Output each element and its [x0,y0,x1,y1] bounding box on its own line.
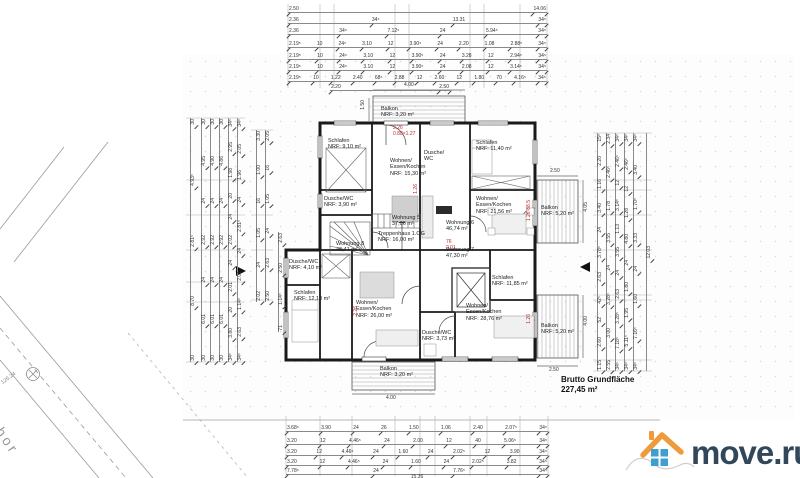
dim-value: 24 [383,439,391,444]
dim-value: 3.90⁵ [411,65,425,70]
dim-value: 13.31 [452,18,467,23]
dim-value: 24⁵ [338,54,348,59]
mini-dim-right-balcony-side: 4.05 [584,202,589,212]
dimension-chain: 34⁵2.46⁵123.14⁵1.133.55242.633.28⁵7.18⁵3… [615,133,624,371]
annotation-door-size-3: 2.26 [354,306,360,316]
dim-value: 2.46⁵ [625,157,630,171]
dim-value: 2.95 [229,141,234,153]
dim-value: 30 [191,118,196,126]
dimension-chain: 3.68⁵3.9024261.501.062.402.07⁵34⁵ [286,424,548,432]
dim-value: 1.28 [625,207,630,219]
gross-floor-area-label: Brutto Grundfläche 227,45 m² [561,375,634,395]
dim-value: 24 [439,29,447,34]
dim-value: 2.08 [461,65,473,70]
dim-value: 1.05 [257,227,262,239]
dimension-chain: 2.19⁵1024⁵3.10123.90⁵242.201.082.88⁵34⁵ [288,40,547,48]
dimension-chain: 2.19⁵101.222.4068⁵2.88122.60121.80704.16… [288,74,547,82]
dim-value: 2.81⁵ [191,234,196,248]
dimension-chain: 2.05161.05242.632.50 [265,130,274,302]
dim-value: 3.68⁵ [286,426,300,431]
dim-value: 7.16⁵ [634,326,639,340]
dim-value: 2.50 [266,290,271,302]
room-label-wohnen-1: Wohnen/ Essen/Kochen NRF: 15,30 m² [390,158,426,177]
room-label-wohnung-5: Wohnung 5 37,06 m² [392,215,420,228]
dim-value: 4.16⁵ [513,76,527,81]
dim-value: 10 [316,65,324,70]
dim-value: 3.78⁵ [598,245,603,259]
dim-value: 6.01 [211,313,216,325]
dim-value: 24 [257,261,262,269]
dim-value: 1.22 [330,76,342,81]
dim-value: 3.55 [616,246,621,258]
dim-value: 2.07⁵ [504,426,518,431]
dim-value: 3.82 [506,460,518,465]
room-label-wohnen-4: Wohnen/ Essen/Kochen NRF: 28,76 m² [466,303,502,322]
dim-value: 24 [202,276,207,284]
dimension-chain: 2.19⁵1024⁵3.10123.90⁵242.08123.14⁵34⁵ [288,63,547,71]
dim-value: 24 [211,197,216,205]
dim-value: 12 [416,76,424,81]
dim-value: 3.90 [509,450,521,455]
dim-value: 2.36 [288,18,300,23]
annotation-door-size-1: 1.26·88.5 [527,200,533,221]
dimension-chain: 3.20124.46⁵241.60242.02⁵3.8234⁵ [286,458,548,466]
dim-value: 1.70⁵ [634,197,639,211]
dim-value: 16 [257,197,262,205]
dim-value: 2.02 [229,234,234,246]
dim-value: 2.92 [211,234,216,246]
dim-value: 24 [352,426,360,431]
room-label-wohnen-2: Wohnen/ Essen/Kochen NRF: 21,56 m² [476,196,512,215]
dim-value: 30 [191,354,196,362]
annotation-window-size: 2.26 0.88×1.27 [393,126,415,137]
dim-value: 1.50 [408,426,420,431]
dim-value: 4.46⁵ [341,450,355,455]
room-label-dusche-4: Dusche/WC NRF: 3,73 m² [422,330,455,343]
room-label-wohnung-6: Wohnung 6 46,74 m² [446,220,474,233]
dim-value: 24⁵ [337,42,347,47]
dim-value: 12 [625,185,630,193]
room-label-dusche-1: Dusche/ WC [424,150,444,163]
room-label-schlafen-1: Schlafen NRF: 9,10 m² [328,138,361,151]
mini-dim-bottom-balcony: 4.00 [386,396,396,401]
dim-value: 1.08 [484,42,496,47]
dim-value: 2.46⁵ [607,165,612,179]
dim-value: 1.14⁵ [279,292,284,306]
dim-value: 3.80 [229,327,234,339]
dim-value: 34⁵ [537,76,547,81]
dim-value: 34⁵ [634,361,639,371]
dim-value: 2.19⁵ [288,42,302,47]
dim-value: 6.01 [220,313,225,325]
dimension-chain: 304.93⁵2.81⁵8.7030 [190,118,199,362]
room-label-dusche-3: Dusche/WC NRF: 4,10 m² [289,259,322,272]
dim-value: 8.70 [191,295,196,307]
dim-value: 24 [229,259,234,267]
dim-value: 30 [202,118,207,126]
dim-value: 34⁵ [537,54,547,59]
dim-value: 5.11⁵ [625,334,630,347]
dim-value: 1.16 [598,178,603,190]
dim-value: 34⁵ [537,29,547,34]
room-label-schlafen-2: Schlafen NRF: 11,40 m² [476,140,512,153]
dim-value: 1.80 [473,76,485,81]
dim-value: 68⁵ [374,76,384,81]
dim-value: 34⁵ [625,133,630,143]
dim-value: 2.01 [229,281,234,293]
dim-value: 3.55 [607,232,612,244]
dimension-chain: 34⁵3.401.70⁵3.33241.607.16⁵34⁵ [633,133,642,371]
dim-value: 1.13 [616,223,621,235]
room-label-treppenhaus: Treppenhaus 1.OG NRF: 16,00 m² [378,231,425,244]
dim-value: 24 [598,226,603,234]
dim-value: 30 [211,354,216,362]
dim-value: 5.06⁵ [503,439,517,444]
dim-value: 1.60 [397,450,409,455]
dim-value: 2.94⁵ [509,54,523,59]
room-label-schlafen-3: Schlafen NRF: 12,10 m² [294,290,330,303]
mini-dim-top-balcony-side: 1.50 [361,100,366,110]
dim-value: 2.60 [434,76,446,81]
dim-value: 2.50 [288,7,300,12]
dim-value: 10 [316,42,324,47]
floorplan-page: 2.5014.062.3634⁵13.3134⁵2.3634⁵7.12⁵245.… [0,0,800,478]
dim-value: 34⁵ [238,118,243,128]
dim-value: 4.95 [202,155,207,167]
dim-value: 24 [382,460,390,465]
dim-value: 1.60 [410,460,422,465]
dim-value: 3.14⁵ [509,65,523,70]
dim-value: 24 [616,269,621,277]
dim-value: 2.50 [279,262,284,274]
dim-value: 2.92 [220,234,225,246]
dim-value: 1.14⁵ [238,297,243,311]
dimension-chain: 2.5014.06 [288,5,547,13]
dim-value: 7.18⁵ [616,336,621,350]
dim-value: 24 [439,54,447,59]
dim-value: 1.78 [607,200,612,212]
dim-value: 26 [380,426,388,431]
dim-value: 34⁵ [616,361,621,371]
dimension-chain: 3.301.00161.05242.02 [256,130,265,302]
dim-value: 70 [495,76,503,81]
dim-value: 34⁵ [537,42,547,47]
dim-value: 10 [312,76,320,81]
dim-value: 24 [443,460,451,465]
dimension-chain: 15⁵2.201.163.40243.78⁵2.6342⁵522.601.15 [597,133,606,371]
dimension-chain: 34⁵2.951.9820242.02242.01203.8034⁵ [228,118,237,362]
dim-value: 12 [389,65,397,70]
dimension-chain: 304.95242.92246.0130 [201,118,210,362]
dim-value: 24 [266,227,271,235]
dim-value: 2.60 [598,336,603,348]
dim-value: 2.01 [238,270,243,282]
mini-dim-right-balcony2-bottom: 2.50 [549,368,559,373]
dim-value: 40 [474,439,482,444]
house-icon [640,428,686,477]
dimension-chain: 3.20124.46⁵242.0012405.06⁵34⁵ [286,437,548,445]
dim-value: 2.05 [238,143,243,155]
dim-value: 2.40 [352,76,364,81]
dim-value: 34⁵ [238,352,243,362]
dim-value: 4.93⁵ [191,173,196,187]
dim-value: 24 [436,42,444,47]
dim-value: 3.28 [461,54,473,59]
dim-value: 3.10 [361,42,373,47]
dimension-chain: 34⁵2.051.96242.81⁵242.011.14⁵2.6334⁵ [237,118,246,362]
dim-value: 12 [445,439,453,444]
dim-value: 1.95 [625,307,630,319]
dim-value: 2.02 [257,290,262,302]
dim-value: 2.92 [202,234,207,246]
dim-value: 34⁵ [616,133,621,143]
dim-value: 2.05 [266,130,271,142]
dim-value: 34⁵ [229,118,234,128]
dim-value: 2.00 [412,439,424,444]
dim-value: 3.90 [320,426,332,431]
room-label-balkon-right-2: Balkon NRF: 5,20 m² [541,323,574,336]
dimension-chain: 304.86242.92246.0130 [219,118,228,362]
dim-value: 12.03 [647,245,652,260]
room-label-dusche-2: Dusche/WC NRF: 3,90 m² [324,196,357,209]
dimension-chain: 34⁵2.46⁵121.284.80241.801.955.11⁵34⁵ [624,133,633,371]
mini-dim-top-balcony: 4.00 [404,83,414,88]
dim-value: 2.50 [438,85,450,90]
dim-value: 1.96 [238,169,243,181]
dim-value: 1.60 [634,293,639,305]
dim-value: 34⁵ [538,439,548,444]
dim-value: 2.63 [266,257,271,269]
dim-value: 20 [229,306,234,314]
dim-value: 2.88⁵ [509,42,523,47]
dim-value: 30 [202,354,207,362]
dim-value: 2.19⁵ [288,65,302,70]
dim-value: 3.30 [257,130,262,142]
annotation-door-size-2: 1.26 [527,314,533,324]
dim-value: 3.10 [362,65,374,70]
dim-value: 1.00 [257,164,262,176]
dim-value: 71 [279,324,284,332]
dim-value: 34⁵ [371,18,381,23]
dim-value: 52 [598,316,603,324]
dim-value: 12 [319,460,327,465]
dim-value: 2.55 [607,359,612,371]
dim-value: 2.63 [279,232,284,244]
dim-value: 24 [202,197,207,205]
logo-text: move.ru [691,434,800,472]
dimension-chain: 15.36 [286,473,548,478]
dim-value: 2.63 [616,288,621,300]
dim-value: 12 [487,65,495,70]
dim-value: 1.06 [440,426,452,431]
dim-value: 24 [372,450,380,455]
room-label-wohnen-3: Wohnen/ Essen/Kochen NRF: 26,00 m² [356,300,392,319]
dim-value: 34⁵ [634,133,639,143]
dim-value: 34⁵ [538,426,548,431]
dimension-chain: 304.90242.92246.0130 [210,118,219,362]
room-label-balkon-right-1: Balkon NRF: 5,20 m² [541,205,574,218]
dim-value: 2.19⁵ [288,54,302,59]
dim-value: 3.40 [634,164,639,176]
dim-value: 34⁵ [538,460,548,465]
dim-value: 3.90⁵ [408,42,422,47]
dim-value: 24 [220,276,225,284]
dimension-chain: 12.03 [646,133,655,371]
dim-value: 24 [220,197,225,205]
dim-value: 2.63 [238,326,243,338]
dim-value: 12 [389,54,397,59]
dim-value: 2.02⁵ [471,460,485,465]
dim-value: 2.19⁵ [288,76,302,81]
dim-value: 14.06 [532,7,547,12]
dim-value: 1.05 [266,193,271,205]
room-label-schlafen-4: Schlafen NRF: 11,85 m² [492,275,528,288]
dim-value: 1.80 [625,281,630,293]
dim-value: 2.02⁵ [452,450,466,455]
dim-value: 1.98 [229,167,234,179]
dim-value: 4.80 [625,233,630,245]
dim-value: 24 [229,213,234,221]
dim-value: 10 [316,54,324,59]
move-logo[interactable]: move.ru [640,428,800,477]
dim-value: 30 [211,118,216,126]
annotation-stair: 76 2.01 [446,240,456,251]
dim-value: 3.28⁵ [607,292,612,306]
dim-value: 34⁵ [537,18,547,23]
dim-value: 24 [238,247,243,255]
room-label-balkon-top: Balkon NRF: 3,20 m² [381,106,414,119]
dim-value: 12 [456,76,464,81]
dim-value: 24 [634,265,639,273]
dim-value: 2.20 [330,85,342,90]
room-label-wohnung-8: Wohnung 8 46,41 m² [336,241,364,254]
dim-value: 20 [229,192,234,200]
dim-value: 2.36 [288,29,300,34]
mini-dim-right-balcony2-side: 4.00 [584,316,589,326]
dim-value: 12 [319,439,327,444]
dim-value: 12 [315,450,323,455]
dim-value: 12 [484,450,492,455]
room-label-balkon-bottom: Balkon NRF: 3,20 m² [380,366,413,379]
dim-value: 34⁵ [338,29,348,34]
dim-value: 4.90 [211,155,216,167]
dim-value: 3.40 [598,202,603,214]
dim-value: 16 [266,164,271,172]
dimension-chain: 2.3634⁵13.3134⁵ [288,16,547,24]
dim-value: 24 [211,276,216,284]
dim-value: 3.00 [607,327,612,339]
dim-value: 24 [427,450,435,455]
dim-value: 30 [220,354,225,362]
dim-value: 34⁵ [229,352,234,362]
dim-value: 24 [238,196,243,204]
dim-value: 4.46⁵ [347,460,361,465]
dim-value: 2.88 [394,76,406,81]
dim-value: 24 [439,65,447,70]
dim-value: 2.40 [472,426,484,431]
dim-value: 5.94⁵ [485,29,499,34]
dim-value: 2.20 [598,155,603,167]
dimension-chain: 2.19⁵1024⁵3.10123.90⁵243.28122.94⁵34⁵ [288,52,547,60]
dim-value: 4.86 [220,155,225,167]
dim-value: 6.01 [202,313,207,325]
mini-dim-right-balcony-top: 2.50 [550,169,560,174]
dim-value: 42⁵ [598,295,603,305]
dim-value: 34⁵ [625,361,630,371]
dim-value: 2.81⁵ [238,219,243,233]
dim-value: 34⁵ [537,65,547,70]
dimension-chain: 2.3634⁵7.12⁵245.94⁵34⁵ [288,27,547,35]
dim-value: 3.14⁵ [616,198,621,212]
dim-value: 34⁵ [538,450,548,455]
dim-value: 15⁵ [598,133,603,143]
dim-value: 12 [487,54,495,59]
dim-value: 2.46⁵ [616,154,621,168]
dimension-chain: 3.20124.46⁵241.60242.02⁵123.9034⁵ [286,448,548,456]
annotation-door-size-4: 1.26 [414,184,420,194]
dim-value: 12 [387,42,395,47]
dim-value: 24 [607,264,612,272]
dim-value: 3.20 [286,439,298,444]
dim-value: 3.33 [634,232,639,244]
dim-value: 30 [220,118,225,126]
dim-value: 2.63 [598,271,603,283]
dim-value: 3.10 [362,54,374,59]
dim-value: 1.15 [598,359,603,371]
dimension-chain: 2.202.50 [330,83,450,91]
dim-value: 7.12⁵ [386,29,400,34]
dim-value: 3.28⁵ [616,311,621,325]
dim-value: 4.46⁵ [348,439,362,444]
dim-value: 2.20 [458,42,470,47]
dim-value: 2.34 [607,133,612,145]
dim-value: 24⁵ [338,65,348,70]
dim-value: 24 [625,259,630,267]
dimension-chain: 2.342.46⁵1.783.55243.28⁵3.002.55 [606,133,615,371]
dim-value: 12 [616,179,621,187]
dimension-chain: 2.632.501.14⁵71 [278,232,287,332]
dim-value: 3.90⁵ [411,54,425,59]
dim-value: 3.20 [286,460,298,465]
dim-value: 3.20 [286,450,298,455]
